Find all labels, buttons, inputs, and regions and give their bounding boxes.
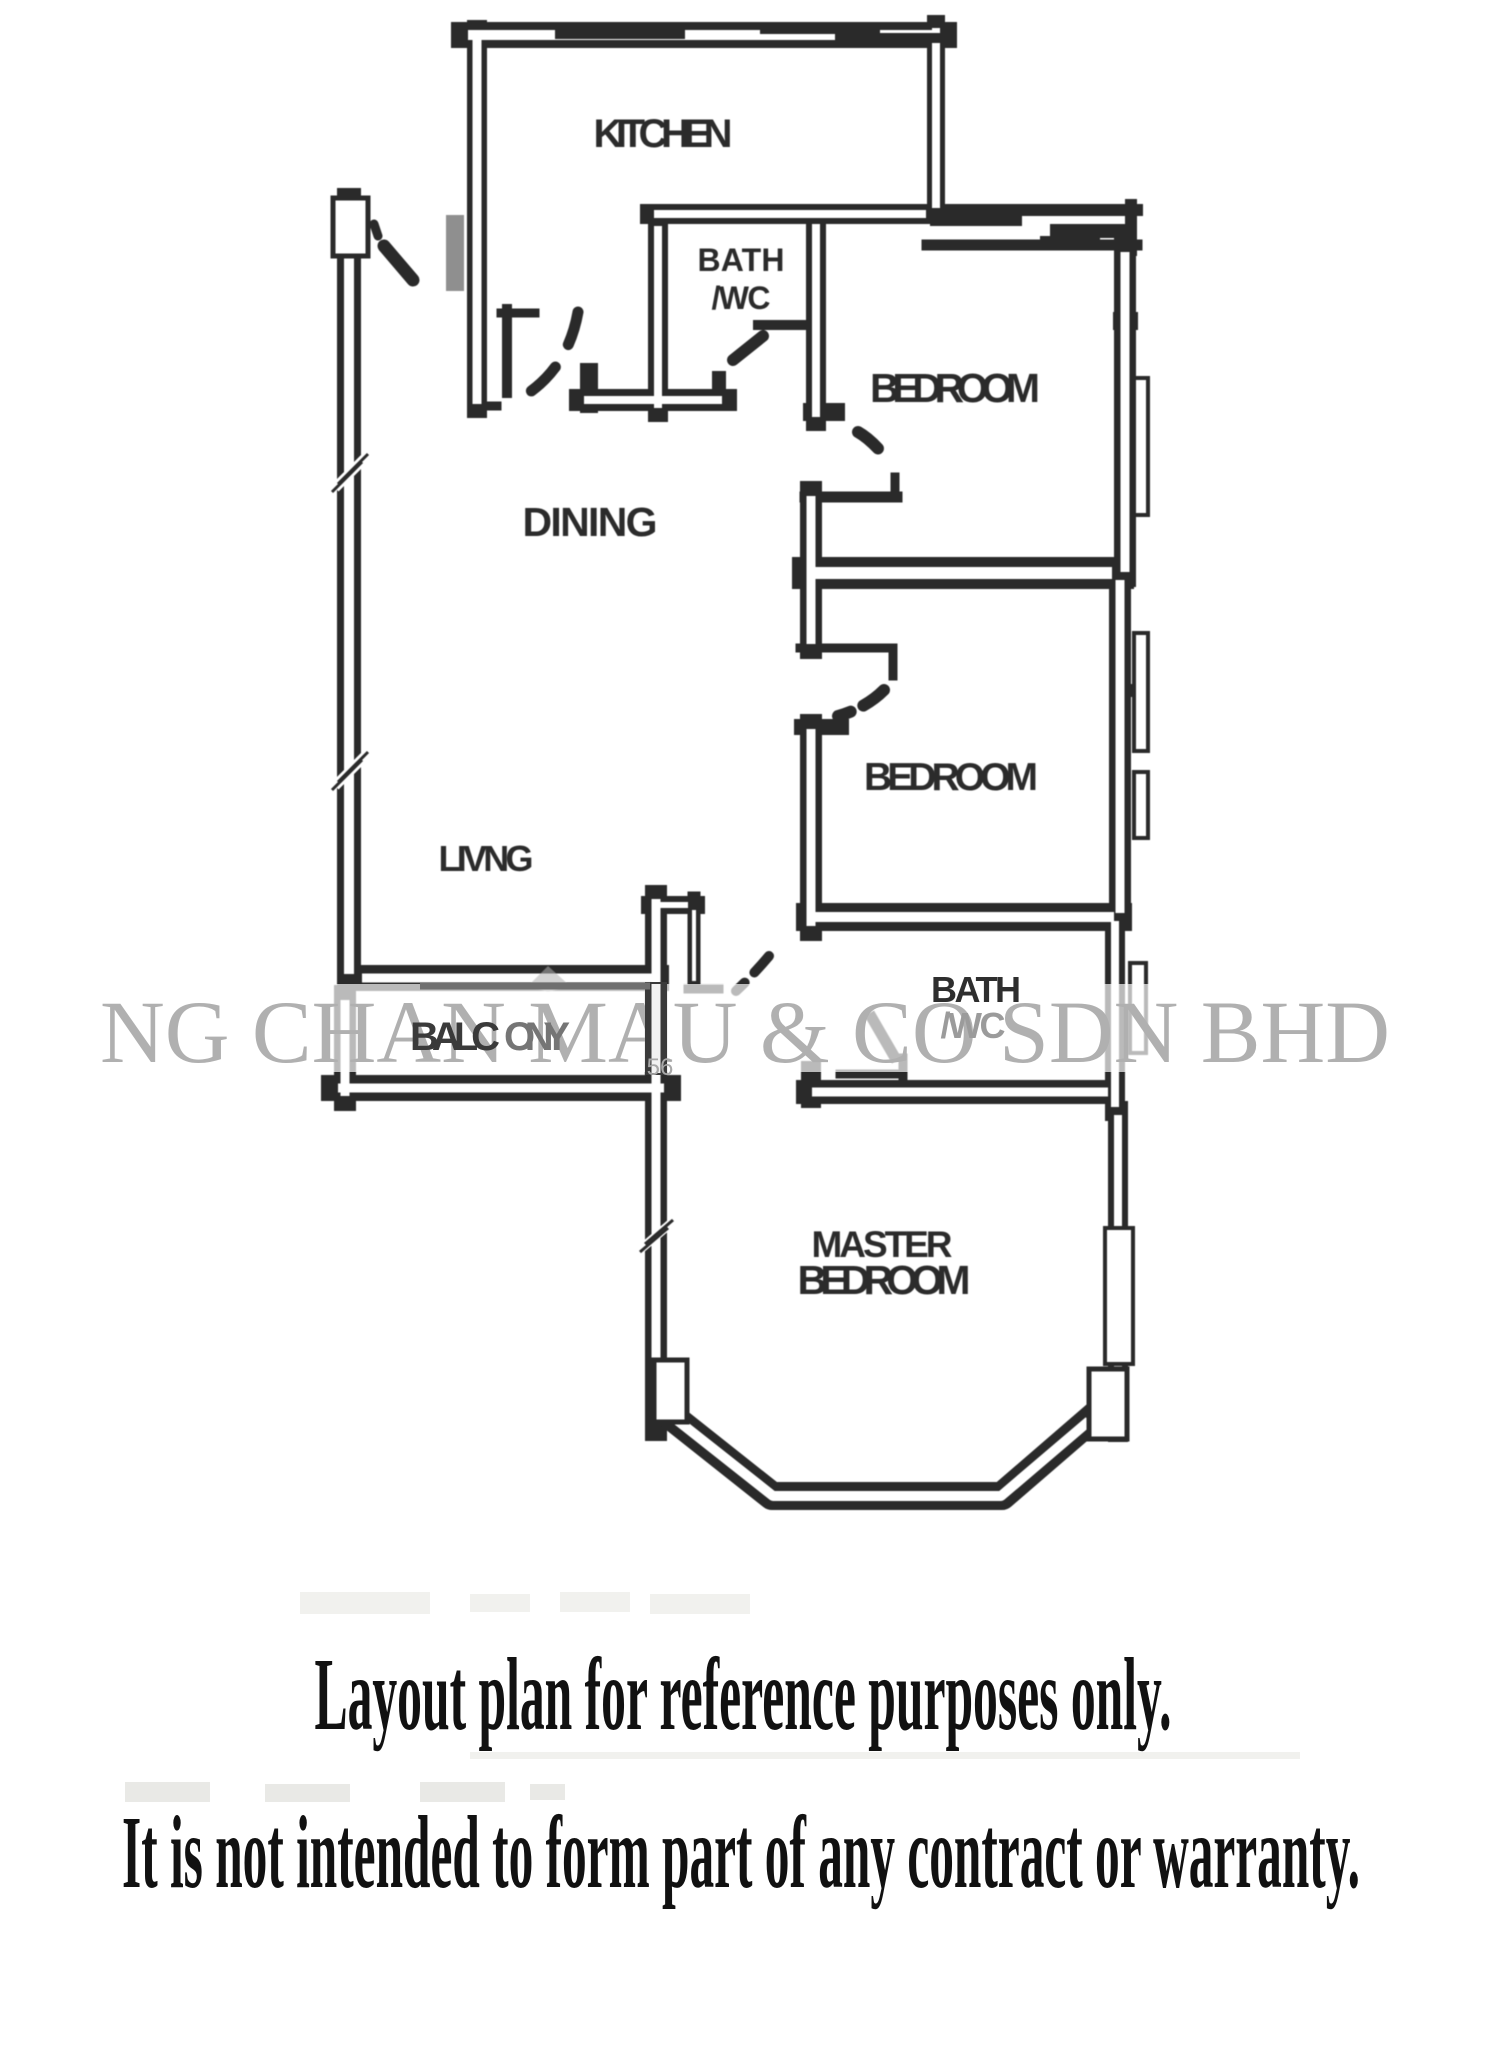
svg-text:/WC: /WC [712, 280, 771, 316]
svg-text:BEDROOM: BEDROOM [798, 1257, 971, 1303]
svg-text:KITCHEN: KITCHEN [594, 112, 733, 156]
svg-text:LIVNG: LIVNG [439, 838, 534, 879]
svg-text:BEDROOM: BEDROOM [870, 365, 1040, 411]
svg-text:DINING: DINING [523, 499, 658, 545]
svg-text:BATH: BATH [698, 242, 785, 278]
svg-text:BEDROOM: BEDROOM [864, 756, 1038, 799]
